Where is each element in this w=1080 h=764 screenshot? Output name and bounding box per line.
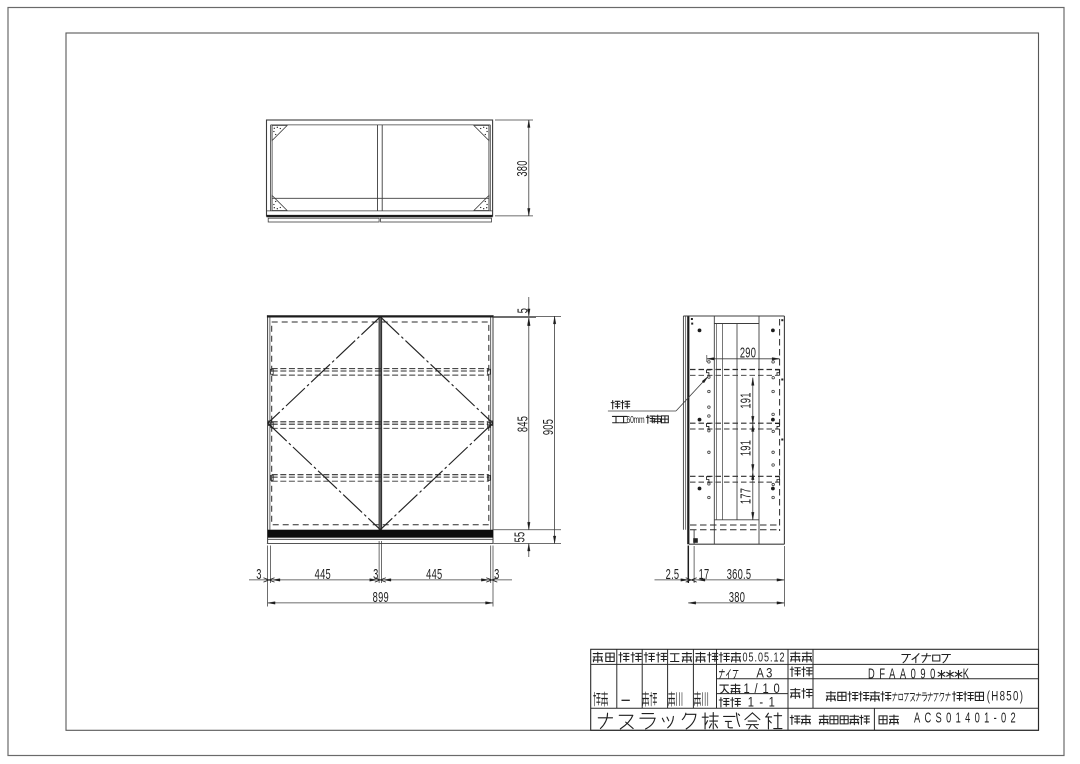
svg-text:899: 899 bbox=[373, 589, 389, 606]
svg-text:3: 3 bbox=[373, 566, 378, 583]
svg-text:445: 445 bbox=[426, 566, 442, 583]
svg-text:905: 905 bbox=[540, 419, 557, 435]
svg-text:845: 845 bbox=[514, 416, 531, 432]
svg-text:DFAA090: DFAA090 bbox=[868, 665, 940, 682]
svg-text:55: 55 bbox=[511, 532, 528, 543]
svg-text:K: K bbox=[963, 665, 970, 682]
svg-text:3: 3 bbox=[256, 566, 261, 583]
svg-text:05.05.12: 05.05.12 bbox=[742, 651, 785, 665]
svg-text:(H850): (H850) bbox=[987, 689, 1024, 704]
svg-text:60mm: 60mm bbox=[627, 414, 645, 426]
svg-text:2.5: 2.5 bbox=[666, 566, 680, 583]
svg-text:177: 177 bbox=[737, 488, 754, 504]
svg-text:360.5: 360.5 bbox=[727, 566, 751, 583]
svg-text:1-1: 1-1 bbox=[748, 694, 780, 709]
svg-text:5: 5 bbox=[514, 308, 531, 313]
svg-text:191: 191 bbox=[737, 392, 754, 408]
svg-text:290: 290 bbox=[740, 344, 756, 361]
svg-text:A3: A3 bbox=[756, 665, 774, 680]
svg-text:3: 3 bbox=[494, 566, 499, 583]
svg-text:380: 380 bbox=[514, 160, 531, 176]
svg-text:445: 445 bbox=[315, 566, 331, 583]
svg-text:ACS01401-02: ACS01401-02 bbox=[914, 709, 1020, 726]
svg-text:17: 17 bbox=[699, 566, 710, 583]
svg-text:191: 191 bbox=[737, 440, 754, 456]
svg-text:380: 380 bbox=[729, 589, 745, 606]
